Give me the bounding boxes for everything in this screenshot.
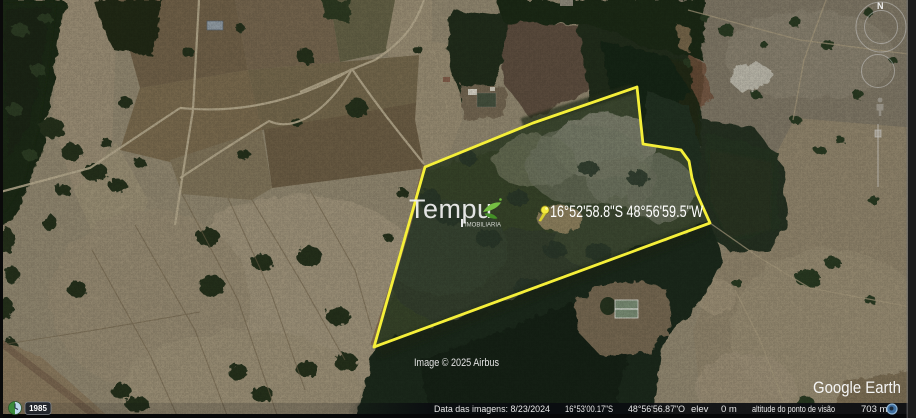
svg-text:16°52'58.8"S 48°56'59.5"W: 16°52'58.8"S 48°56'59.5"W xyxy=(550,203,703,221)
svg-text:Data das imagens: 8/23/2024: Data das imagens: 8/23/2024 xyxy=(434,404,550,415)
svg-text:16°53'00.17"S: 16°53'00.17"S xyxy=(565,404,613,415)
svg-text:N: N xyxy=(877,1,884,11)
svg-text:elev: elev xyxy=(691,404,709,415)
svg-text:0 m: 0 m xyxy=(721,404,737,415)
svg-text:1985: 1985 xyxy=(29,404,47,413)
svg-text:Google Earth: Google Earth xyxy=(813,378,901,397)
svg-text:Tempu: Tempu xyxy=(409,194,493,224)
svg-text:IMOBILIARIA: IMOBILIARIA xyxy=(465,222,502,229)
svg-text:703 m: 703 m xyxy=(861,404,887,415)
svg-text:altitude do ponto de visão: altitude do ponto de visão xyxy=(752,404,835,415)
svg-text:Image © 2025 Airbus: Image © 2025 Airbus xyxy=(414,357,499,369)
svg-text:48°56'56.87"O: 48°56'56.87"O xyxy=(628,404,685,415)
